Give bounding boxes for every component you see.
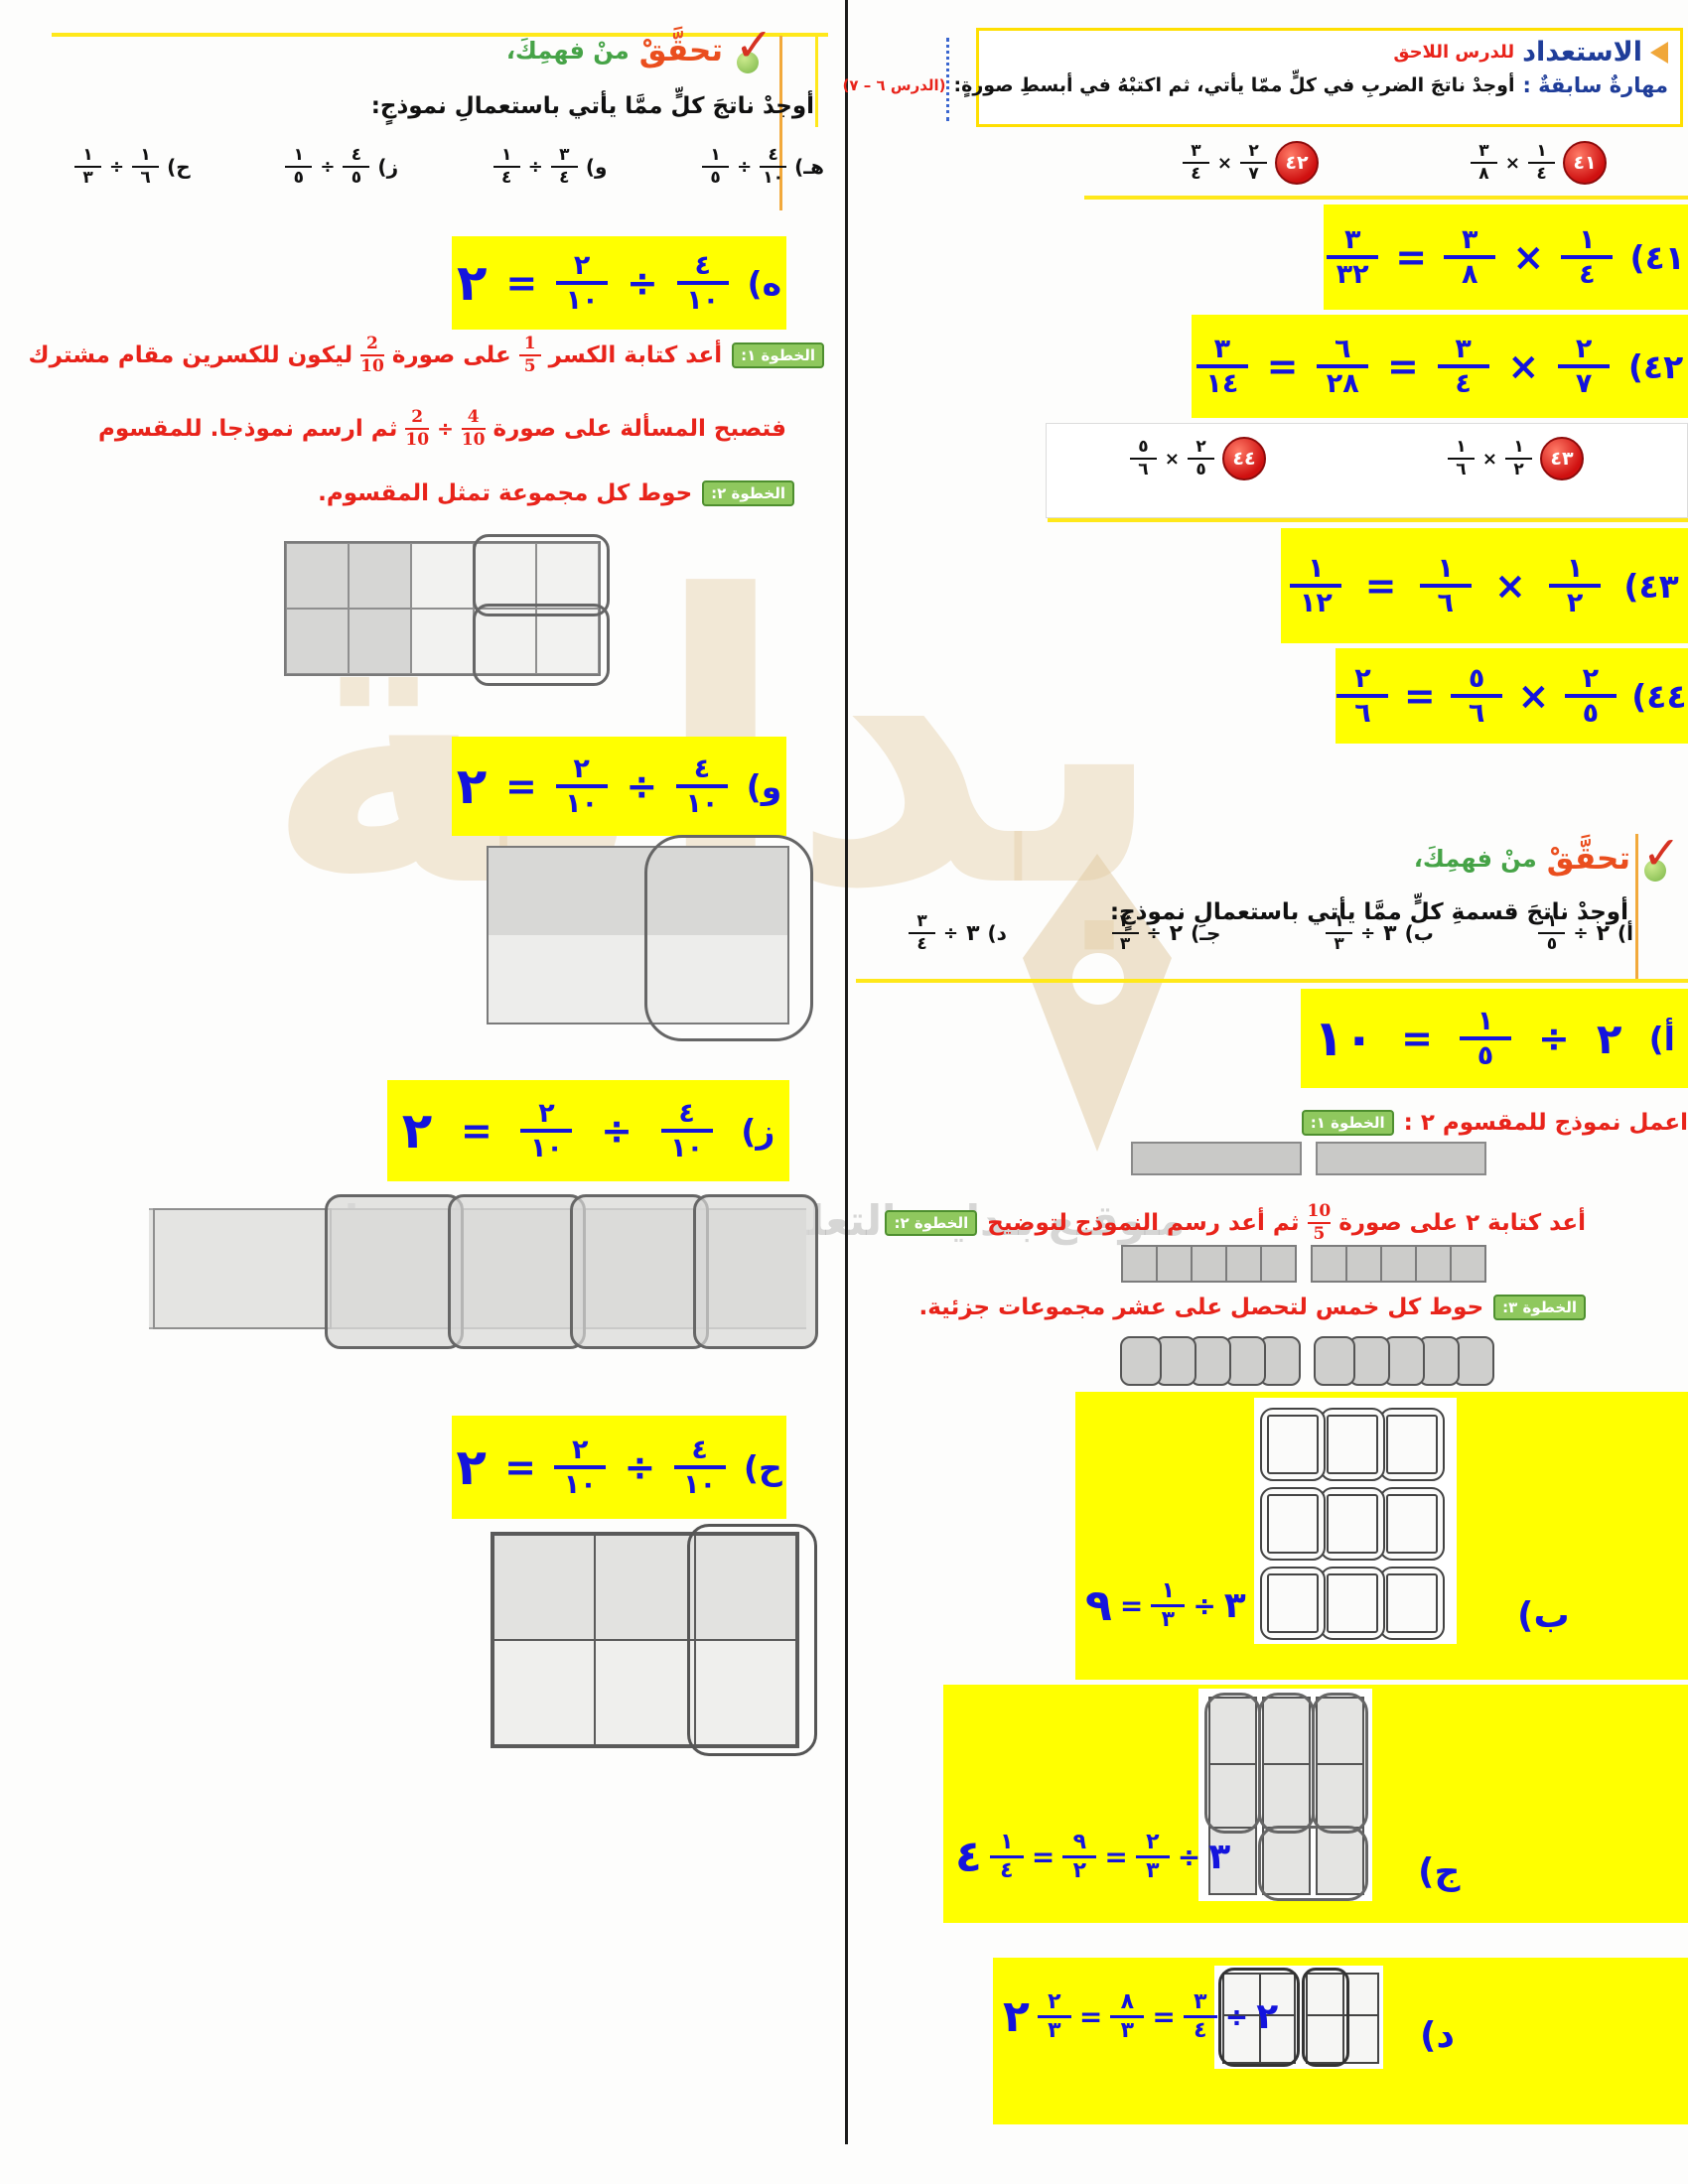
fraction: ٢٧ (1558, 336, 1610, 397)
step-2-row: الخطوة ٢: حوط كل مجموعة تمثل المقسوم. (318, 480, 794, 506)
fraction: ١٤ (1528, 143, 1555, 183)
eq-txt: اعمل نموذج للمقسوم ٢ : (1404, 1110, 1688, 1136)
circled-box (1379, 1487, 1445, 1561)
fraction: ١٣ (1151, 1580, 1185, 1631)
answer-c-label: ج) (1418, 1851, 1460, 1892)
separator-line (1048, 518, 1688, 522)
fraction: ١٦ (1448, 439, 1475, 478)
circled-box (1260, 1408, 1326, 1481)
skill-label: مهارةٌ سابقةٌ : (1522, 73, 1668, 97)
eq-o: ÷ (1573, 923, 1588, 944)
answer-c-box: ٣÷٢٣=٩٢=١٤٤ ج) (943, 1685, 1688, 1923)
eq-o: ÷ (109, 157, 124, 178)
step-2-tag: الخطوة ٢: (702, 480, 794, 506)
grid-cell (493, 1640, 595, 1745)
grid-cell (1225, 1245, 1262, 1283)
model-sixths-grid (496, 1532, 799, 1742)
step-1-row: الخطوة ١: اعمل نموذج للمقسوم ٢ : (1302, 1110, 1688, 1136)
eq-lbl: أ) (1618, 921, 1633, 945)
fraction: ٦٢٨ (1317, 336, 1368, 397)
grid-cell (286, 609, 349, 674)
step-2-tag: الخطوة ٢: (885, 1210, 977, 1236)
fraction: ٢٣ (1038, 1991, 1071, 2042)
eq-o: ÷ (320, 157, 335, 178)
group-loop (570, 1194, 709, 1349)
eq-o: × (1494, 564, 1526, 608)
problem-g: ز)٤٥÷١٥ (285, 147, 398, 187)
eq-o: × (1507, 344, 1539, 388)
fraction: ١١٢ (1290, 555, 1341, 616)
group-loop (473, 604, 610, 686)
grid-cell (286, 543, 349, 609)
prep-title: الاستعداد (1522, 37, 1642, 68)
fraction: ٢٧ (1240, 143, 1267, 183)
grid-cell (411, 609, 474, 674)
eq-o: = (504, 1445, 536, 1489)
circled-box (1379, 1408, 1445, 1481)
fraction: ٢٦ (1336, 665, 1388, 727)
eq-txt: أعد كتابة الكسر (549, 342, 723, 368)
problem-42-badge: ٤٢ (1275, 141, 1319, 185)
check-instruction: أوجدْ ناتجَ كلٍّ ممَّا يأتي باستعمالِ نم… (371, 93, 814, 119)
answer-c-equation: ٣÷٢٣=٩٢=١٤٤ (955, 1832, 1230, 1882)
eq-o: = (1104, 1841, 1127, 1873)
check-heading-word2: منْ فهمِكَ، (506, 37, 630, 65)
fraction: 210 (405, 409, 429, 449)
problem-e: هـ)٤١٠÷١٥ (702, 147, 824, 187)
eq-lbl: جـ) (1191, 921, 1220, 945)
step-1-text: اعمل نموذج للمقسوم ٢ : (1404, 1110, 1688, 1136)
group-loop (1312, 1693, 1368, 1834)
model-fifths-long-strip (149, 1194, 812, 1343)
step-2-text: حوط كل مجموعة تمثل المقسوم. (318, 480, 692, 506)
whole-bar (1316, 1142, 1486, 1175)
eq-lbl: ه) (748, 264, 782, 303)
problem-44-expression: ٢٥×٥٦ (1130, 439, 1214, 478)
eq-n: ٢ (1256, 1996, 1278, 2037)
eq-nbig: ٢ (1003, 1991, 1030, 2042)
eq-nbig: ٩ (1085, 1580, 1112, 1631)
fraction: ٨٣ (1110, 1991, 1144, 2042)
check-heading: ✓ تحقَّقْ منْ فهمِكَ، (506, 26, 778, 75)
answer-b-model-panel (1254, 1398, 1457, 1644)
eq-nbig: ٢ (457, 254, 488, 312)
skill-text: أوجدْ ناتجَ الضربِ في كلٍّ ممّا يأتي، ثم… (954, 74, 1515, 96)
grid-cell (595, 1640, 696, 1745)
fifths-strip (1313, 1245, 1486, 1283)
step-1b-text: فتصبح المسألة على صورة410÷210ثم ارسم نمو… (98, 409, 786, 449)
fraction: ١٦ (1420, 555, 1472, 616)
model-halves-rect (487, 846, 789, 1024)
fraction: ١٣ (1326, 913, 1352, 953)
fraction: 15 (519, 336, 541, 375)
fraction: ٣٤ (551, 147, 578, 187)
problem-a: أ)٢÷١٥ (1538, 913, 1633, 953)
dotted-margin-rule (946, 38, 949, 121)
eq-lbl: أ) (1649, 1020, 1675, 1058)
eq-o: ÷ (626, 764, 657, 808)
fraction: ٢١٠ (556, 755, 608, 817)
eq-txt: فتصبح المسألة على صورة (493, 416, 787, 442)
model-row (1254, 1567, 1457, 1640)
circled-cell (1120, 1336, 1162, 1386)
fraction: ٢١٠ (556, 252, 608, 314)
eq-o: × (1482, 449, 1497, 470)
step-2-text: أعد كتابة ٢ على صورة105ثم أعد رسم النموذ… (987, 1203, 1586, 1243)
eq-lbl: هـ) (794, 155, 824, 179)
check-heading-word2: منْ فهمِكَ، (1414, 845, 1537, 873)
fraction: ٢٣ (1136, 1832, 1170, 1882)
grid-cell (1311, 1245, 1347, 1283)
answer-d-box: ٢÷٣٤=٨٣=٢٣٢ د) (993, 1958, 1688, 2124)
eq-o: = (1079, 2000, 1102, 2033)
grid-cell (411, 543, 474, 609)
grid-cell (1380, 1245, 1417, 1283)
fraction: ٤١٠ (674, 1436, 726, 1498)
eq-o: ÷ (1147, 923, 1162, 944)
step-1-text: أعد كتابة الكسر15على صورة210ليكون للكسري… (29, 336, 723, 375)
answer-41: ٤١)١٤×٣٨=٣٣٢ (1324, 205, 1688, 310)
answer-b-label: ب) (1517, 1595, 1570, 1636)
prep-subtitle: للدرس اللاحق (1393, 42, 1514, 63)
problem-44: ٤٤ ٢٥×٥٦ (1130, 437, 1266, 480)
fraction: ٤١٠ (760, 147, 786, 187)
problem-41-expression: ١٤×٣٨ (1471, 143, 1555, 183)
step-3-row: الخطوة ٣: حوط كل خمس لتحصل على عشر مجموع… (919, 1295, 1587, 1320)
circled-box (1379, 1567, 1445, 1640)
grid-cell (493, 1535, 595, 1640)
eq-lbl: ٤٤) (1631, 677, 1686, 716)
eq-nbig: ٤ (955, 1832, 982, 1882)
fraction: ٣٤ (909, 913, 935, 953)
grid-cell (1121, 1245, 1158, 1283)
fraction: ١٦ (132, 147, 159, 187)
eq-txt: على صورة (392, 342, 511, 368)
eq-lbl: ٤١) (1629, 238, 1684, 277)
eq-o: ÷ (1538, 1017, 1570, 1060)
eq-txt: ليكون للكسرين مقام مشترك (29, 342, 353, 368)
problem-41-badge: ٤١ (1563, 141, 1607, 185)
eq-o: = (1152, 2000, 1175, 2033)
fraction: ٢١٠ (554, 1436, 606, 1498)
answer-44: ٤٤)٢٥×٥٦=٢٦ (1336, 648, 1688, 744)
answer-43: ٤٣)١٢×١٦=١١٢ (1281, 528, 1688, 643)
step-1-row: الخطوة ١: أعد كتابة الكسر15على صورة210لي… (29, 336, 825, 375)
group-loop (448, 1194, 587, 1349)
problem-d: د)٣÷٣٤ (909, 913, 1007, 953)
eq-nbig: ٢ (456, 1438, 487, 1496)
eq-nbig: ٢ (402, 1102, 433, 1160)
answer-42: ٤٢)٢٧×٣٤=٦٢٨=٣١٤ (1192, 315, 1688, 418)
fraction: ٥٦ (1130, 439, 1157, 478)
group-loop (1258, 1826, 1368, 1901)
yellow-margin-rule (815, 36, 818, 127)
checkmark-icon: ✓ (733, 26, 778, 75)
fraction: ١٤ (493, 147, 520, 187)
fraction: 410 (462, 409, 486, 449)
problem-42: ٤٢ ٢٧×٣٤ (1183, 141, 1319, 185)
check-heading-word1: تحقَّقْ (639, 33, 723, 68)
circled-cell (1314, 1336, 1355, 1386)
problem-41: ٤١ ١٤×٣٨ (1471, 141, 1607, 185)
problem-43: ٤٣ ١٢×١٦ (1448, 437, 1584, 480)
eq-o: = (461, 1109, 492, 1153)
model-tenths-grid (288, 541, 601, 672)
problem-h: ح)١٦÷١٣ (74, 147, 191, 187)
fraction: ٥٦ (1451, 665, 1502, 727)
eq-n: ٣ (1208, 1837, 1230, 1877)
group-loop (325, 1194, 464, 1349)
model-dividend-bars (1131, 1142, 1486, 1175)
step-1-tag: الخطوة ١: (1302, 1110, 1394, 1136)
group-loop (687, 1524, 817, 1757)
grid-cell (349, 609, 411, 674)
eq-o: = (1404, 674, 1436, 718)
problem-43-expression: ١٢×١٦ (1448, 439, 1532, 478)
grid-cell (1450, 1245, 1486, 1283)
eq-lbl: ح) (167, 155, 191, 179)
fraction: ١٢ (1549, 555, 1601, 616)
eq-o: = (1365, 564, 1397, 608)
eq-o: × (1165, 449, 1180, 470)
eq-o: = (1401, 1017, 1433, 1060)
eq-n: ٣ (1383, 921, 1396, 946)
separator-line (856, 979, 1688, 983)
fraction: ٤١٠ (677, 252, 729, 314)
fraction: ٤٥ (343, 147, 369, 187)
eq-o: = (1032, 1841, 1055, 1873)
eq-txt: ثم ارسم نموذجا. للمقسوم (98, 416, 397, 442)
right-column: الاستعداد للدرس اللاحق مهارةٌ سابقةٌ : أ… (854, 0, 1688, 2184)
circled-box (1260, 1487, 1326, 1561)
eq-o: = (1120, 1589, 1143, 1622)
eq-o: ÷ (1225, 2000, 1248, 2033)
fraction: 105 (1308, 1203, 1332, 1243)
model-row (1254, 1408, 1457, 1481)
fraction: ١٤ (1561, 226, 1613, 288)
model-circled-fifths (1127, 1336, 1494, 1386)
fraction: ١٣ (74, 147, 101, 187)
eq-o: × (1505, 153, 1520, 174)
eq-o: ÷ (437, 417, 454, 441)
circled-strip (1127, 1336, 1301, 1386)
step-3-tag: الخطوة ٣: (1493, 1295, 1586, 1320)
fraction: ٣١٤ (1196, 336, 1248, 397)
fifths-strip (1123, 1245, 1297, 1283)
answer-b-equation: ٣÷١٣=٩ (1085, 1580, 1246, 1631)
problem-44-badge: ٤٤ (1222, 437, 1266, 480)
answer-f: و)٤١٠÷٢١٠=٢ (452, 737, 786, 836)
eq-o: ÷ (1178, 1841, 1200, 1873)
problem-f: و)٣٤÷١٤ (493, 147, 608, 187)
answer-b-box: ٣÷١٣=٩ ب) (1075, 1392, 1688, 1680)
fraction: ١٥ (1538, 913, 1565, 953)
eq-lbl: ز) (377, 155, 398, 179)
fraction: ٣٤ (1438, 336, 1489, 397)
grid-cell (1156, 1245, 1193, 1283)
eq-nbig: ١٠ (1314, 1010, 1374, 1067)
eq-o: × (1217, 153, 1232, 174)
eq-o: ÷ (601, 1109, 633, 1153)
eq-txt: حوط كل مجموعة تمثل المقسوم. (318, 480, 692, 506)
fraction: 210 (360, 336, 384, 375)
fraction: ٣٨ (1444, 226, 1495, 288)
fraction: ٢٥ (1565, 665, 1617, 727)
model-fifths-strips (1123, 1245, 1486, 1283)
fraction: ٢٥ (1188, 439, 1214, 478)
group-loop (1258, 1693, 1315, 1834)
eq-lbl: ح) (744, 1448, 782, 1487)
problem-42-expression: ٢٧×٣٤ (1183, 143, 1267, 183)
grid-cell (1415, 1245, 1452, 1283)
problem-43-badge: ٤٣ (1540, 437, 1584, 480)
strip-first-cell (153, 1208, 332, 1329)
fraction: ٤١٠ (676, 755, 728, 817)
eq-o: = (1267, 344, 1299, 388)
fraction: ٢١٠ (520, 1100, 572, 1161)
group-loop (693, 1194, 818, 1349)
model-row (1254, 1487, 1457, 1561)
fraction: ٤١٠ (661, 1100, 713, 1161)
prep-skill-row: مهارةٌ سابقةٌ : أوجدْ ناتجَ الضربِ في كل… (985, 73, 1668, 97)
eq-o: = (505, 764, 537, 808)
step-1-tag: الخطوة ١: (732, 342, 824, 368)
eq-o: ÷ (1360, 923, 1375, 944)
eq-o: ÷ (528, 157, 543, 178)
check-heading-word1: تحقَّقْ (1547, 841, 1630, 877)
textbook-page: بداية مـوقـع بـدايـة التعليمي | beadaya.… (0, 0, 1688, 2184)
column-divider (845, 0, 848, 2144)
fraction: ١٢ (1505, 439, 1532, 478)
eq-lbl: و) (747, 767, 782, 806)
grid-cell (1191, 1245, 1227, 1283)
fraction: ٢٣ (1112, 913, 1139, 953)
eq-lbl: و) (586, 155, 608, 179)
eq-lbl: ب) (1405, 921, 1434, 945)
circled-box (1320, 1487, 1385, 1561)
group-loop (644, 835, 814, 1041)
eq-txt: ثم أعد رسم النموذج لتوضيح (987, 1210, 1299, 1236)
grid-cell (349, 543, 411, 609)
fraction: ٩٢ (1062, 1832, 1096, 1882)
eq-o: ÷ (1193, 1589, 1215, 1622)
fraction: ٣٤ (1183, 143, 1209, 183)
fraction: ٣٣٢ (1327, 226, 1378, 288)
checkmark-icon: ✓ (1640, 834, 1686, 884)
eq-o: × (1518, 674, 1550, 718)
step-1b-row: فتصبح المسألة على صورة410÷210ثم ارسم نمو… (98, 409, 786, 449)
group-loop (1302, 1968, 1349, 2067)
answer-a: أ)٢÷١٥=١٠ (1301, 989, 1688, 1088)
grid-cell (1345, 1245, 1382, 1283)
group-loop (1204, 1693, 1261, 1834)
eq-lbl: ٤٢) (1628, 347, 1683, 386)
problem-c: جـ)٢÷٢٣ (1112, 913, 1221, 953)
circled-box (1260, 1567, 1326, 1640)
eq-n: ٣ (966, 921, 979, 946)
lesson-ref: (الدرس ٦ – ٧) (843, 76, 946, 94)
step-2-row: الخطوة ٢: أعد كتابة ٢ على صورة105ثم أعد … (885, 1203, 1586, 1243)
eq-o: = (1395, 235, 1427, 279)
eq-o: × (1512, 235, 1544, 279)
answer-e: ه)٤١٠÷٢١٠=٢ (452, 236, 786, 330)
eq-n: ٣ (1224, 1585, 1246, 1626)
eq-o: ÷ (737, 157, 752, 178)
grid-cell (1260, 1245, 1297, 1283)
eq-nbig: ٢ (457, 757, 488, 815)
answer-d-equation: ٢÷٣٤=٨٣=٢٣٢ (1003, 1991, 1278, 2042)
arrow-left-icon (1650, 42, 1668, 64)
circled-box (1320, 1567, 1385, 1640)
fraction: ٣٨ (1471, 143, 1497, 183)
whole-bar (1131, 1142, 1302, 1175)
left-column: ✓ تحقَّقْ منْ فهمِكَ، أوجدْ ناتجَ كلٍّ م… (40, 0, 834, 2184)
fraction: ٣٤ (1184, 1991, 1217, 2042)
eq-lbl: د) (988, 921, 1007, 945)
answer-d-label: د) (1420, 2015, 1455, 2056)
prep-title-row: الاستعداد للدرس اللاحق (985, 37, 1668, 68)
fraction: ١٥ (1460, 1008, 1511, 1069)
separator-line (1084, 196, 1688, 200)
answer-g: ز)٤١٠÷٢١٠=٢ (387, 1080, 789, 1181)
eq-o: = (1387, 344, 1419, 388)
eq-o: ÷ (624, 1445, 655, 1489)
fraction: ١٥ (702, 147, 729, 187)
fraction: ١٤ (990, 1832, 1024, 1882)
circled-strip (1321, 1336, 1494, 1386)
check-problems-row: هـ)٤١٠÷١٥ و)٣٤÷١٤ ز)٤٥÷١٥ ح)١٦÷١٣ (74, 147, 824, 187)
eq-lbl: ز) (741, 1112, 774, 1151)
grid-cell (595, 1535, 696, 1640)
circled-box (1320, 1408, 1385, 1481)
prep-next-lesson-box: الاستعداد للدرس اللاحق مهارةٌ سابقةٌ : أ… (976, 28, 1683, 127)
eq-o: ÷ (627, 261, 658, 305)
eq-n: ٢ (1597, 921, 1610, 946)
eq-o: ÷ (943, 923, 958, 944)
answer-h: ح)٤١٠÷٢١٠=٢ (452, 1416, 786, 1519)
check-heading: ✓ تحقَّقْ منْ فهمِكَ، (1414, 834, 1686, 884)
eq-txt: حوط كل خمس لتحصل على عشر مجموعات جزئية. (919, 1295, 1484, 1320)
eq-n: ٢ (1170, 921, 1183, 946)
fraction: ١٥ (285, 147, 312, 187)
eq-lbl: ٤٣) (1623, 567, 1678, 606)
eq-txt: أعد كتابة ٢ على صورة (1338, 1210, 1586, 1236)
step-3-text: حوط كل خمس لتحصل على عشر مجموعات جزئية. (919, 1295, 1484, 1320)
problem-b: ب)٣÷١٣ (1326, 913, 1434, 953)
eq-n: ٢ (1597, 1015, 1622, 1063)
eq-o: = (505, 261, 537, 305)
check-problems-row: أ)٢÷١٥ ب)٣÷١٣ جـ)٢÷٢٣ د)٣÷٣٤ (909, 913, 1633, 953)
